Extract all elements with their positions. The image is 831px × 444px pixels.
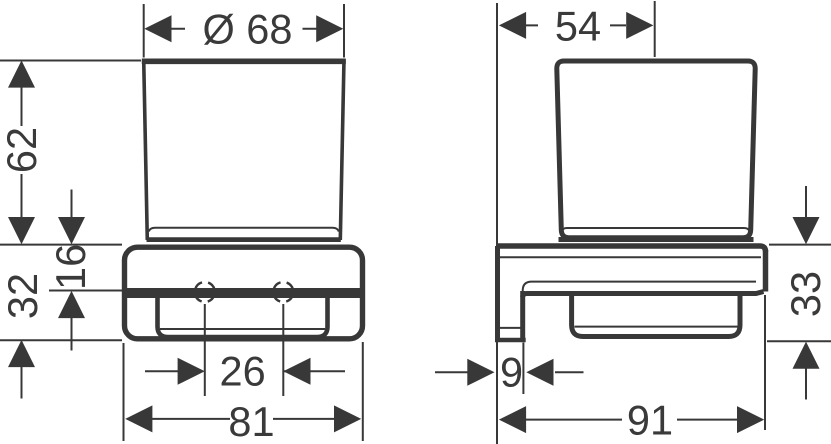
svg-text:Ø 68: Ø 68 <box>203 6 293 53</box>
svg-text:32: 32 <box>0 273 46 319</box>
svg-text:62: 62 <box>0 127 45 173</box>
svg-text:33: 33 <box>782 271 829 317</box>
svg-text:54: 54 <box>555 3 601 50</box>
svg-text:91: 91 <box>627 397 673 444</box>
svg-text:81: 81 <box>228 398 274 444</box>
svg-text:26: 26 <box>220 347 266 394</box>
svg-text:9: 9 <box>500 348 523 395</box>
svg-text:16: 16 <box>47 244 94 290</box>
